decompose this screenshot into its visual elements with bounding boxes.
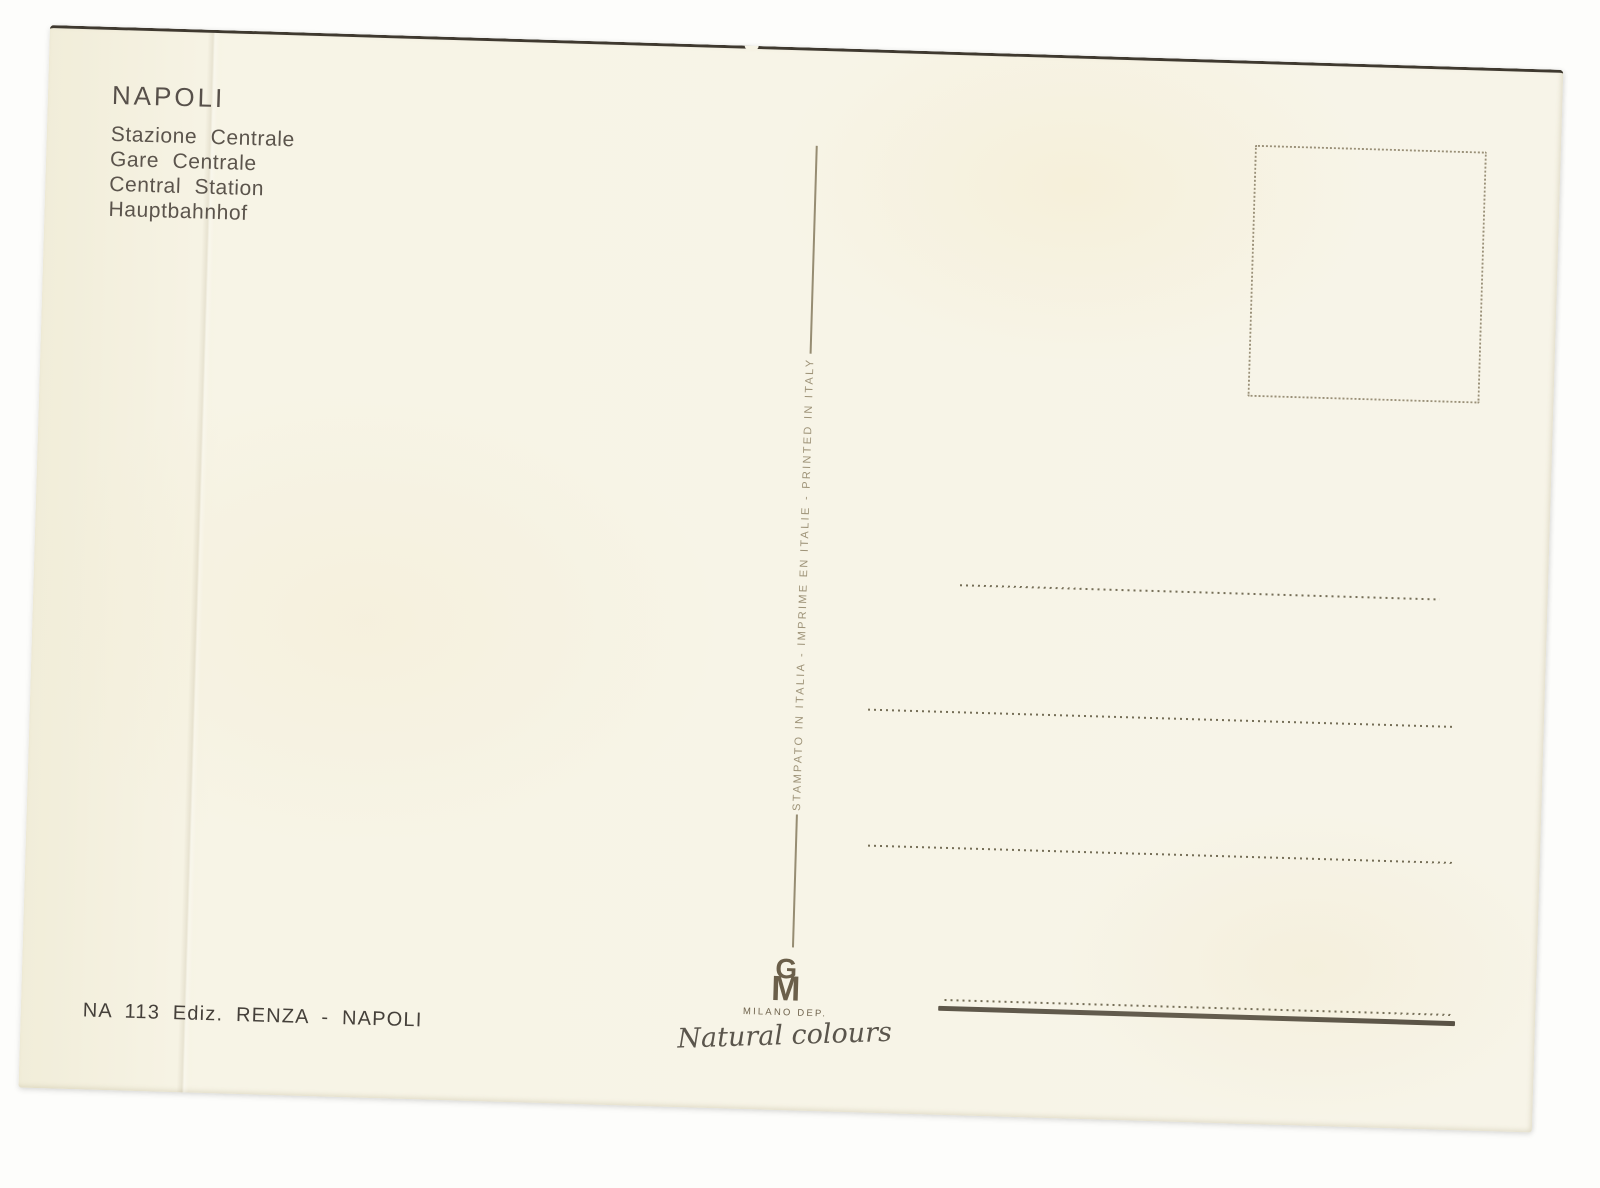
publisher-credit: NA 113 Ediz. RENZA - NAPOLI xyxy=(82,999,422,1032)
caption-line-german: Hauptbahnhof xyxy=(108,197,293,227)
logo-tagline: Natural colours xyxy=(677,1017,892,1055)
address-baseline-thick xyxy=(938,1006,1455,1026)
top-edge-notch xyxy=(745,46,759,50)
stamp-box xyxy=(1248,145,1487,404)
divider-line-top xyxy=(810,146,818,354)
postcard-back: NAPOLI Stazione Centrale Gare Centrale C… xyxy=(18,25,1563,1132)
caption-block: NAPOLI Stazione Centrale Gare Centrale C… xyxy=(108,80,296,227)
monogram-letter-m: M xyxy=(771,974,801,1005)
printer-imprint: STAMPATO IN ITALIA - IMPRIME EN ITALIE -… xyxy=(791,358,816,812)
address-line-3 xyxy=(868,845,1455,864)
address-line-1 xyxy=(960,584,1440,600)
center-divider: STAMPATO IN ITALIA - IMPRIME EN ITALIE -… xyxy=(781,145,829,947)
divider-line-bottom xyxy=(792,815,797,948)
address-line-2 xyxy=(868,709,1453,728)
scan-background: NAPOLI Stazione Centrale Gare Centrale C… xyxy=(0,0,1600,1188)
gm-monogram-icon: G M xyxy=(771,958,802,1005)
postcard-title: NAPOLI xyxy=(111,80,296,116)
logo-caption: MILANO DEP. xyxy=(743,1006,828,1019)
publisher-logo: G M MILANO DEP. Natural colours xyxy=(699,956,872,1054)
